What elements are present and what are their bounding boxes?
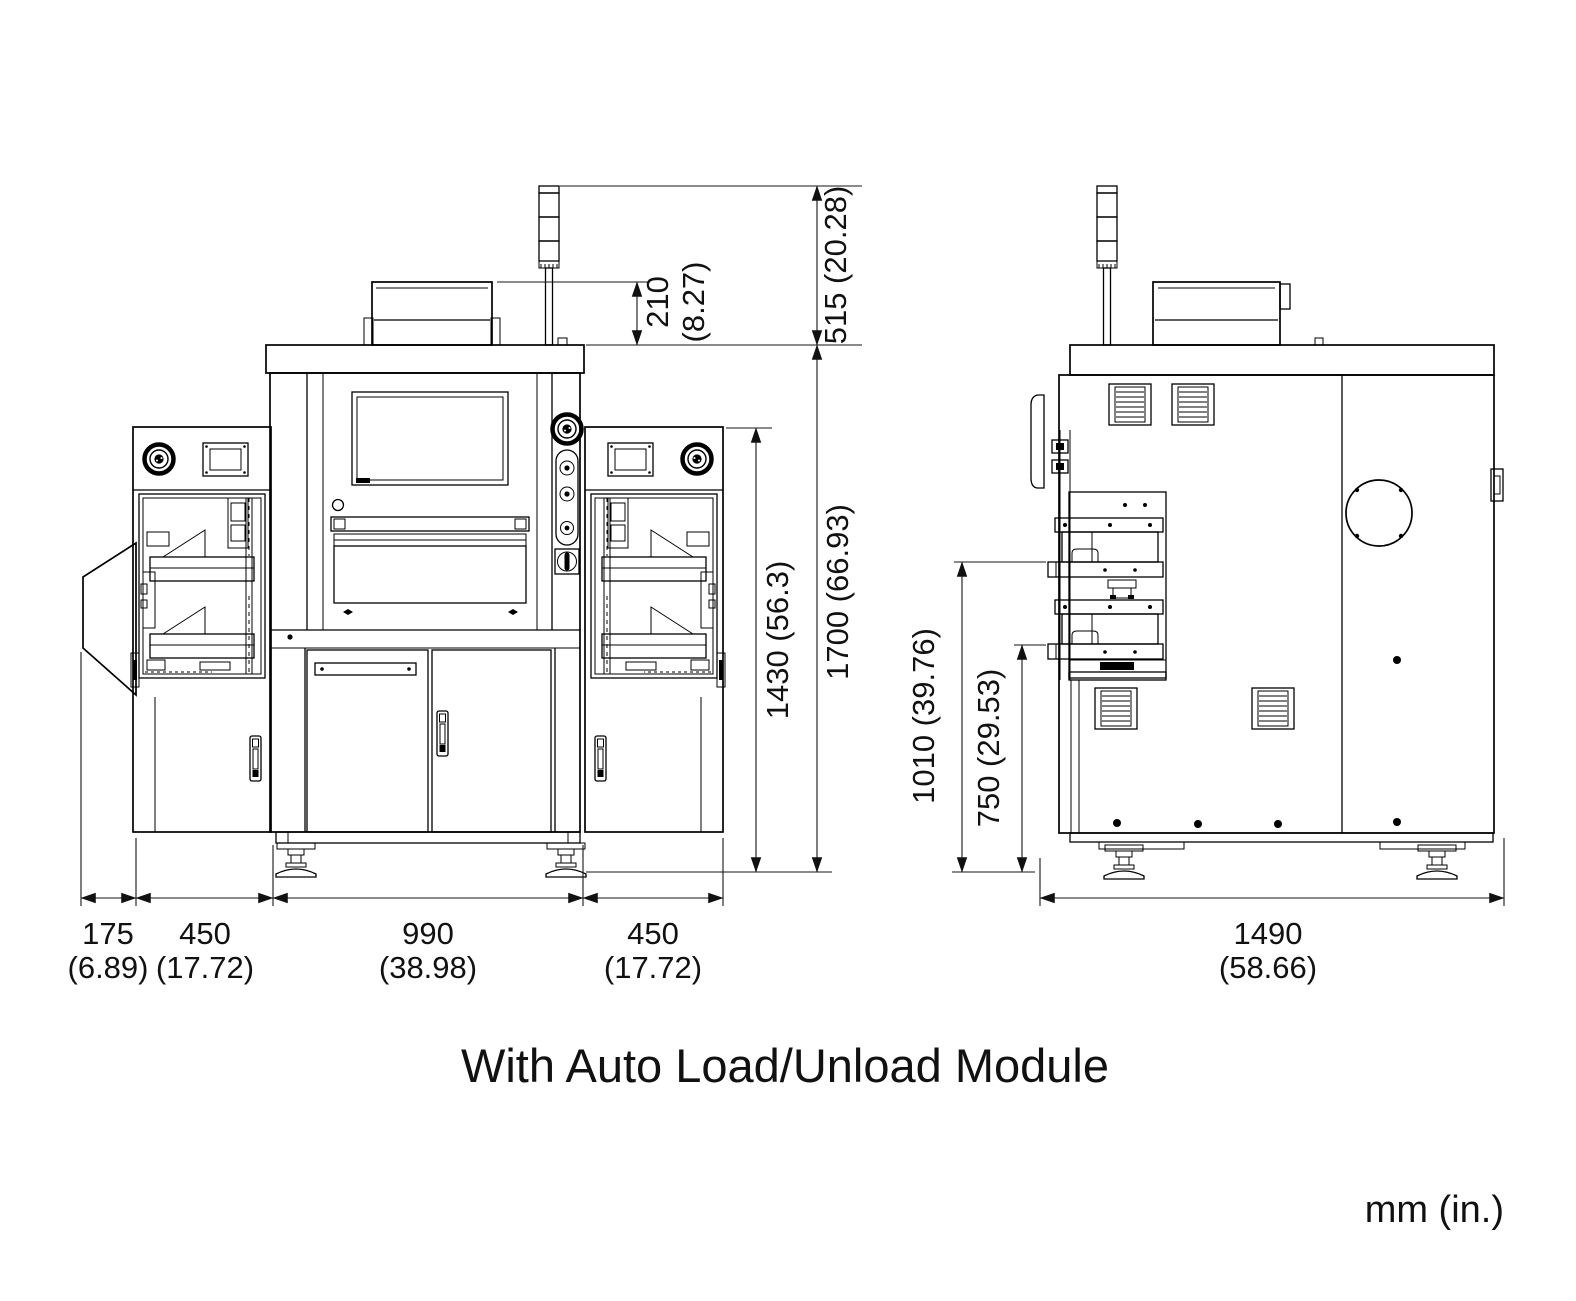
- dim-label: 1430 (56.3): [760, 561, 795, 720]
- cabinet-doors: [305, 648, 555, 832]
- leveling-foot: [1417, 845, 1457, 879]
- side-protrusion: [83, 543, 136, 695]
- dim-lower-shelf-height: 750 (29.53): [971, 645, 1022, 872]
- side-top-box: [1153, 282, 1323, 345]
- front-main-unit: [266, 345, 586, 877]
- right-load-module: [585, 427, 725, 832]
- leveling-foot: [546, 843, 586, 877]
- dim-label: (6.89): [68, 950, 149, 985]
- dim-label: 1490: [1234, 916, 1303, 951]
- front-view: [83, 186, 725, 877]
- side-signal-tower-icon: [1097, 186, 1117, 345]
- units-note: mm (in.): [1365, 1189, 1504, 1231]
- conveyor-slot: [331, 517, 529, 615]
- dim-label: 750 (29.53): [971, 669, 1006, 828]
- control-column: [553, 415, 582, 575]
- dim-label: 515 (20.28): [818, 186, 853, 345]
- front-top-box: [364, 282, 500, 345]
- dim-front-widths: 175 (6.89) 450 (17.72) 990 (38.98) 450 (…: [68, 652, 723, 985]
- dim-label: 990: [402, 916, 454, 951]
- vent-grille: [1172, 384, 1214, 425]
- dim-module-height: 1430 (56.3): [756, 428, 795, 872]
- dim-label: 450: [179, 916, 231, 951]
- dim-overall-height: 1700 (66.93): [817, 345, 855, 872]
- caption: With Auto Load/Unload Module: [461, 1039, 1109, 1092]
- front-signal-tower-icon: [539, 186, 567, 345]
- side-body: [1059, 345, 1503, 833]
- dim-label: 1010 (39.76): [906, 628, 941, 804]
- dim-label: (38.98): [379, 950, 477, 985]
- side-view: [1031, 186, 1503, 879]
- dimension-annotations: 210 (8.27) 515 (20.28) 1430 (56.3) 1700 …: [68, 186, 1504, 985]
- round-button: [333, 500, 344, 511]
- drawing-canvas: 210 (8.27) 515 (20.28) 1430 (56.3) 1700 …: [0, 0, 1576, 1301]
- dim-label: (8.27): [676, 262, 711, 343]
- dim-label: 1700 (66.93): [820, 504, 855, 680]
- side-base: [1070, 833, 1493, 879]
- vent-grille: [1252, 688, 1294, 729]
- dimension-drawing: 210 (8.27) 515 (20.28) 1430 (56.3) 1700 …: [0, 0, 1576, 1301]
- tray-assembly: [1031, 395, 1166, 833]
- main-power-switch: [555, 549, 579, 574]
- dim-side-depth: 1490 (58.66): [1040, 838, 1504, 985]
- left-load-module: [131, 427, 271, 832]
- fan-opening: [1346, 480, 1412, 546]
- dim-label: (17.72): [604, 950, 702, 985]
- vent-grille: [1095, 688, 1137, 729]
- vent-grille: [1109, 384, 1151, 425]
- dim-label: 450: [627, 916, 679, 951]
- dim-label: 175: [82, 916, 134, 951]
- touchscreen-display: [352, 392, 508, 485]
- left-door-handle: [315, 663, 416, 675]
- leveling-foot: [1104, 845, 1144, 879]
- emergency-stop-button: [553, 415, 582, 444]
- dim-label: 210: [640, 276, 675, 328]
- leveling-foot: [276, 843, 316, 877]
- right-door-handle: [437, 711, 448, 756]
- dim-top-box-height: 210 (8.27): [637, 262, 711, 345]
- dim-label: (58.66): [1219, 950, 1317, 985]
- dim-tower-height: 515 (20.28): [817, 186, 853, 345]
- dim-upper-shelf-height: 1010 (39.76): [906, 562, 962, 872]
- dim-label: (17.72): [156, 950, 254, 985]
